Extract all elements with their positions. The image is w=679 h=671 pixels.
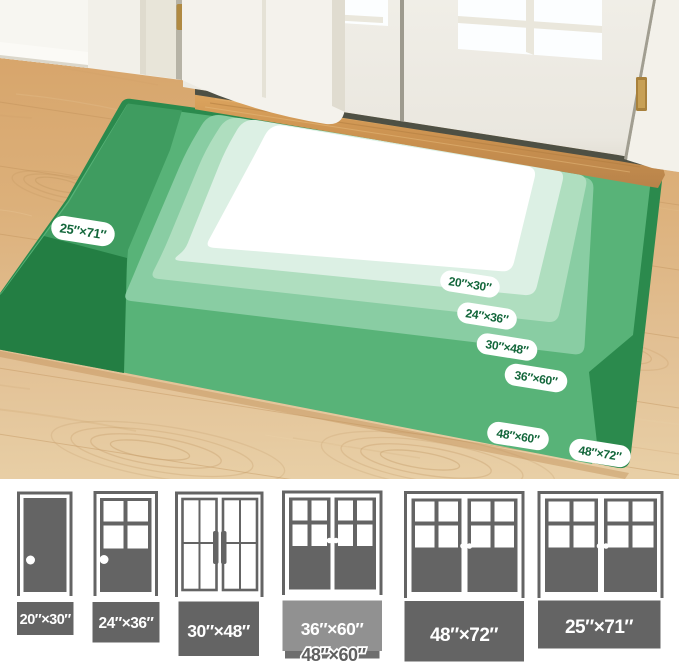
svg-text:20″×30″: 20″×30″ (20, 612, 72, 628)
svg-text:36″×60″: 36″×60″ (301, 619, 365, 639)
svg-text:25″×71″: 25″×71″ (565, 617, 633, 638)
svg-text:24″×36″: 24″×36″ (99, 615, 155, 632)
svg-text:48″×60″: 48″×60″ (301, 645, 366, 665)
svg-text:30″×48″: 30″×48″ (187, 621, 251, 641)
svg-text:48″×72″: 48″×72″ (430, 625, 498, 646)
